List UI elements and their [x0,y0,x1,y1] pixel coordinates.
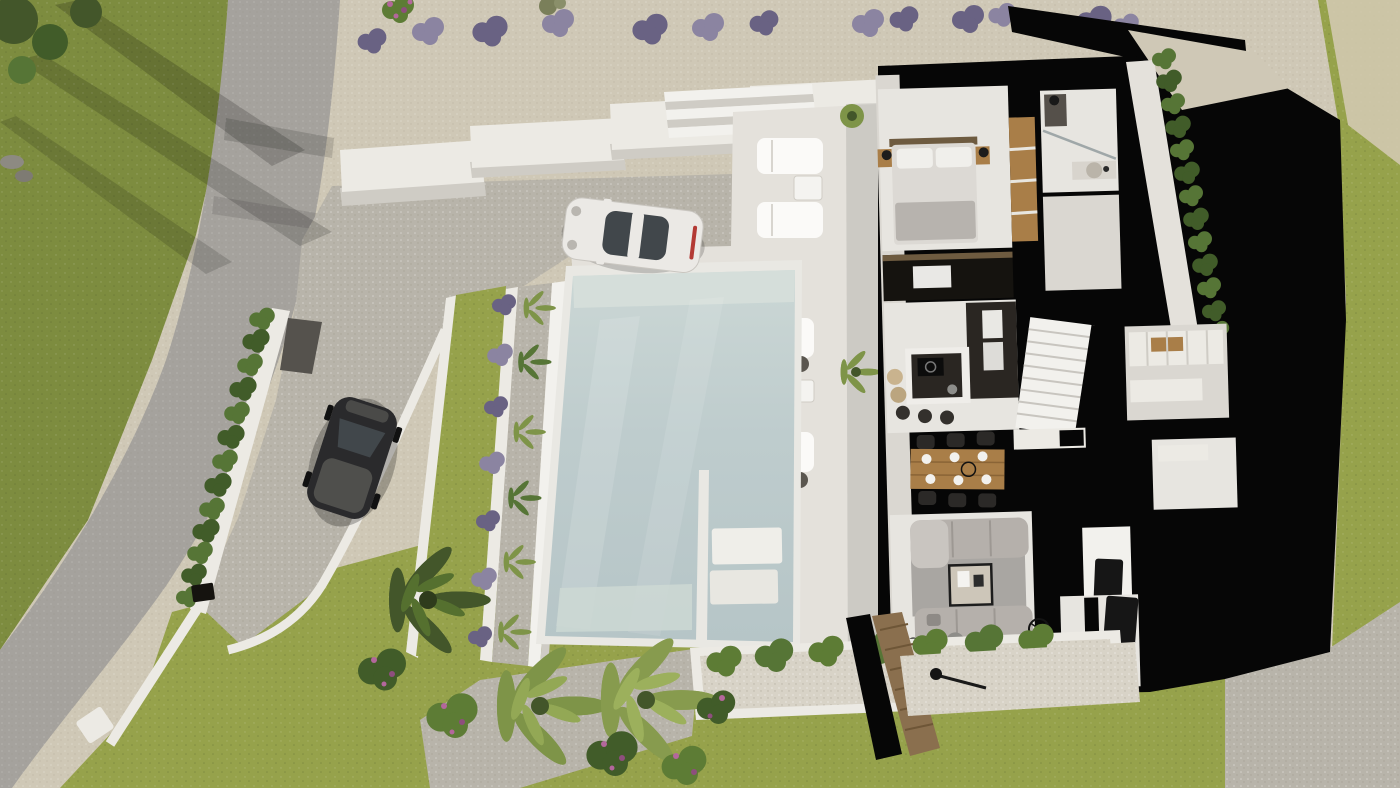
hall-floor [1043,195,1122,291]
potted-plant-core [847,111,857,121]
pool-platform-sunbed [710,569,779,604]
dining-chair [978,493,996,507]
place-setting [950,452,960,462]
place-setting [981,474,991,484]
pillow [935,147,972,168]
bed-blanket [895,201,976,241]
render-canvas: Top-down photorealistic 3D rendering of … [0,0,1400,788]
coffee-table [949,564,992,605]
villa-aerial-render [0,0,1400,788]
place-setting [922,454,932,464]
tree [8,56,36,84]
rocks [0,155,24,169]
pool-platform-sunbed [712,527,783,564]
fire-bowl [930,668,942,680]
deck-house-shadow [846,103,880,702]
side-mirror [603,198,612,205]
kitchen [884,300,1020,434]
magazines [973,575,983,587]
cooktop [917,358,943,377]
oven [982,310,1003,339]
place-setting [978,451,988,461]
dining-chair [977,431,995,445]
swimming-pool [536,260,802,650]
oven [983,342,1004,371]
pool-bench-step [556,584,692,632]
villa [875,6,1346,700]
place-setting [925,474,935,484]
media-wall [882,252,1013,302]
storage-counter [1158,444,1208,461]
sofa-chaise [910,520,949,569]
step-band-2 [470,118,624,168]
lower-cabinets [1130,378,1203,402]
dining-chair [948,493,966,507]
sun-lounger [757,138,823,174]
rocks [15,170,33,182]
side-mirror [596,258,605,265]
place-setting [953,475,963,485]
sun-lounger [757,202,823,238]
pool-top-shelf [573,270,795,308]
bathroom [1040,89,1119,193]
throw-pillow [927,614,941,626]
gate-lamp [191,583,215,603]
tree [32,24,68,60]
dining-chair [918,491,936,505]
dining-chair [917,435,935,449]
stair-void [1059,430,1083,447]
wall-tv [913,265,952,288]
pillow [897,148,934,169]
magazines [957,571,969,587]
wardrobe-corridor [1125,324,1230,421]
dining-area [910,431,1005,508]
dining-chair [947,433,965,447]
side-table [794,176,822,200]
